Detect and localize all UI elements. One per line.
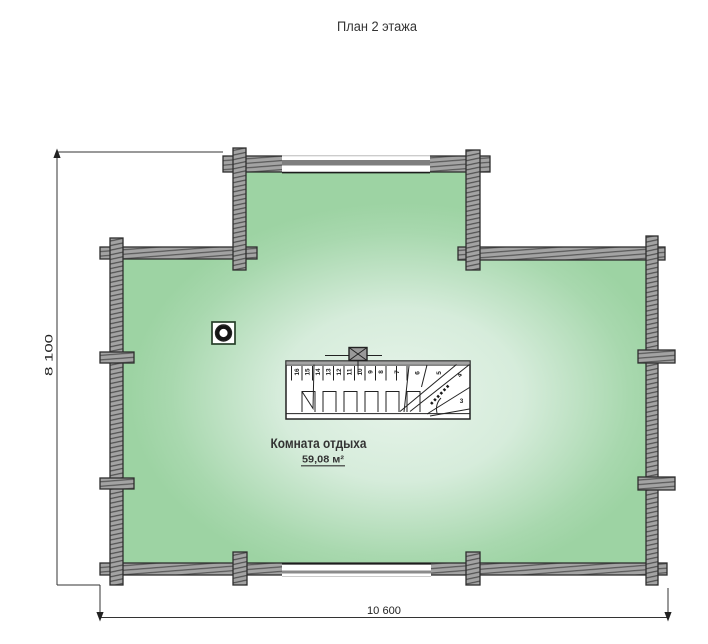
svg-text:3: 3 (460, 398, 464, 405)
svg-text:11: 11 (347, 368, 354, 375)
svg-text:6: 6 (415, 371, 422, 375)
svg-text:9: 9 (368, 370, 375, 374)
svg-text:7: 7 (394, 370, 401, 374)
svg-text:8: 8 (378, 370, 385, 374)
svg-text:8 100: 8 100 (44, 334, 56, 376)
svg-text:10: 10 (357, 368, 364, 376)
svg-text:16: 16 (294, 368, 301, 376)
svg-text:59,08 м²: 59,08 м² (302, 454, 345, 466)
svg-text:План 2 этажа: План 2 этажа (337, 19, 417, 34)
svg-text:Комната отдыха: Комната отдыха (271, 436, 367, 451)
svg-text:10 600: 10 600 (367, 605, 401, 617)
svg-text:14: 14 (315, 368, 322, 376)
svg-text:15: 15 (305, 368, 312, 376)
svg-text:5: 5 (436, 371, 443, 375)
svg-text:13: 13 (326, 368, 333, 376)
svg-text:12: 12 (336, 368, 343, 376)
